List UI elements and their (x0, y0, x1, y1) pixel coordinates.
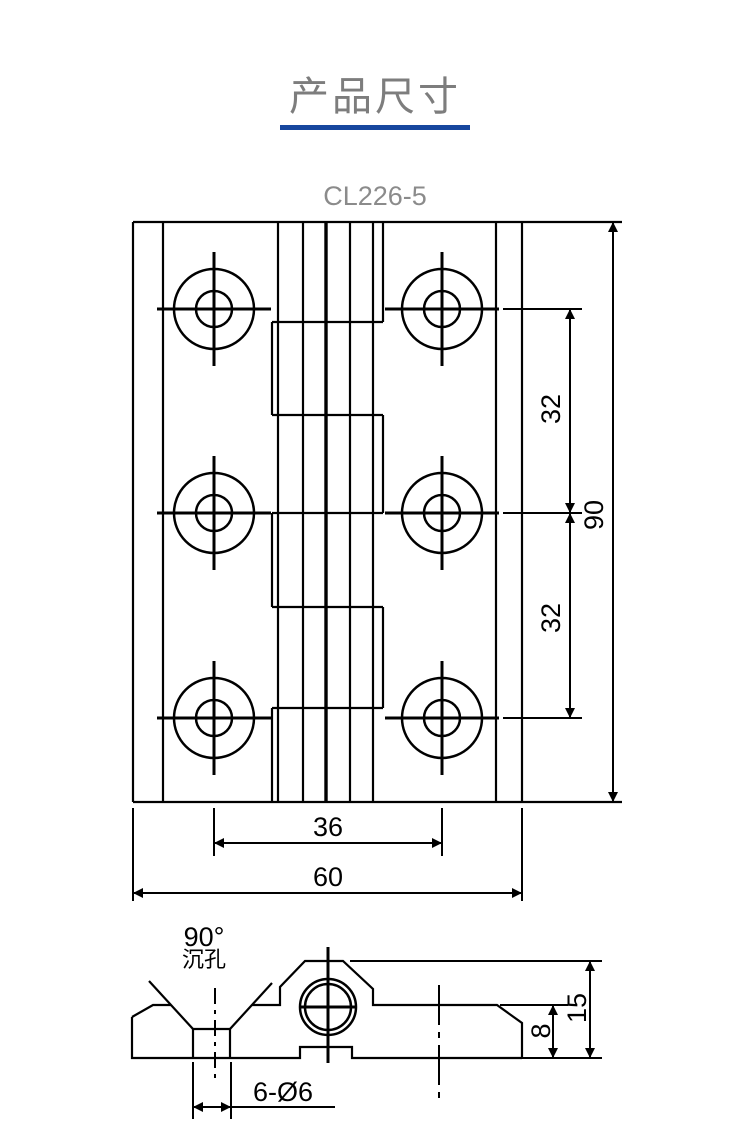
dim-label-pitch-bottom: 32 (536, 603, 566, 633)
dim-label-height: 90 (579, 500, 609, 530)
model-label: CL226-5 (323, 181, 427, 211)
dim-label-hole-span: 36 (313, 812, 343, 842)
holes-spec-label: 6-Ø6 (253, 1077, 313, 1107)
dim-label-pitch-top: 32 (536, 394, 566, 424)
technical-drawing: CL226-5 32 32 90 36 60 90° 沉孔 6-Ø6 8 15 (0, 0, 750, 1145)
dim-label-width: 60 (313, 862, 343, 892)
dim-label-plate-thickness: 8 (526, 1023, 556, 1038)
countersink-label: 沉孔 (182, 947, 226, 972)
front-view (133, 222, 622, 901)
drawing-labels: CL226-5 32 32 90 36 60 90° 沉孔 6-Ø6 8 15 (182, 181, 609, 1107)
dim-label-total-height: 15 (562, 993, 592, 1023)
hinge-knuckle (272, 222, 383, 802)
